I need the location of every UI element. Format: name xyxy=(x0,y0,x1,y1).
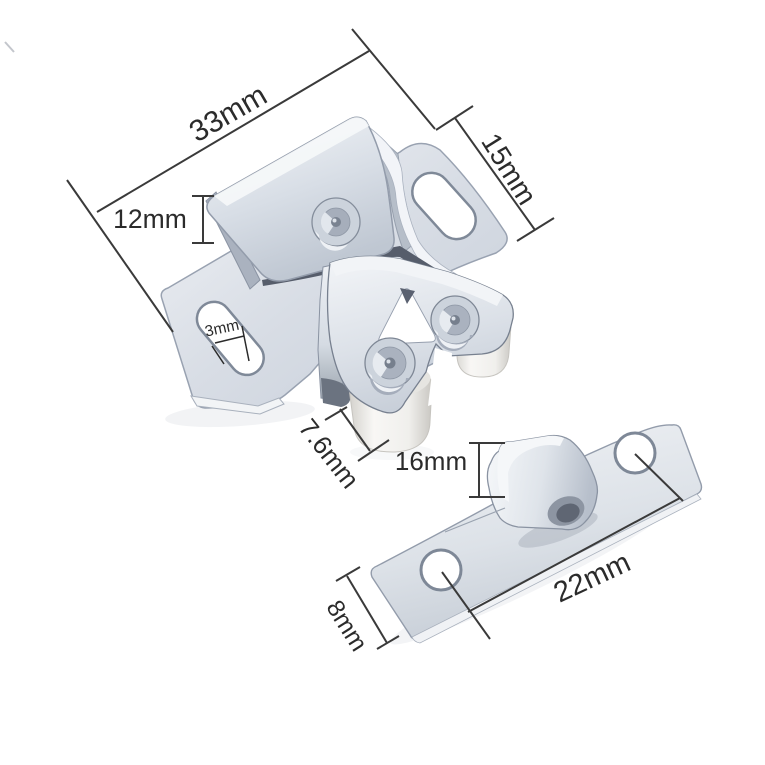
svg-text:16mm: 16mm xyxy=(395,446,467,476)
svg-text:12mm: 12mm xyxy=(113,204,187,234)
